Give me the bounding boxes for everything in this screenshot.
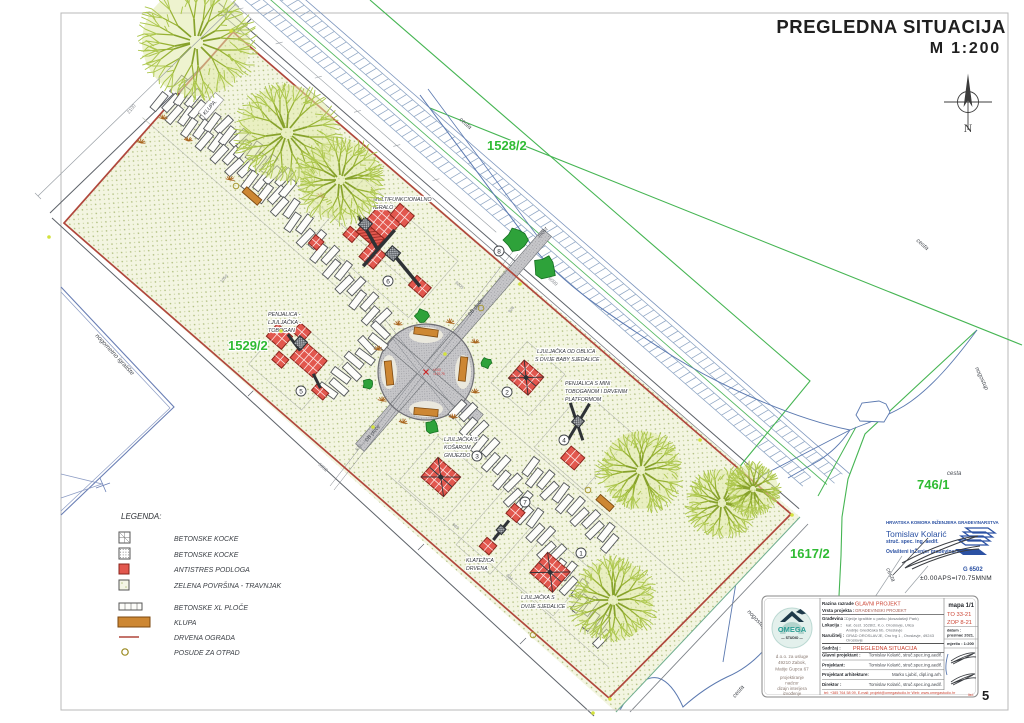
svg-text:DRVENA: DRVENA (466, 566, 488, 572)
svg-text:LEGENDA:: LEGENDA: (121, 512, 161, 521)
svg-text:Sadržaj :: Sadržaj : (822, 646, 841, 651)
svg-text:GRAĐEVINSKI PROJEKT: GRAĐEVINSKI PROJEKT (855, 608, 907, 613)
svg-text:LJULJAČKA S: LJULJAČKA S (444, 436, 478, 443)
svg-text:2: 2 (505, 389, 509, 396)
svg-text:GLAVNI PROJEKT: GLAVNI PROJEKT (855, 602, 901, 608)
svg-text:— STUDIO —: — STUDIO — (781, 636, 803, 640)
svg-text:KOŠAROM: KOŠAROM (444, 444, 471, 451)
svg-text:=170,75: =170,75 (433, 372, 445, 376)
svg-text:PLATFORMOM: PLATFORMOM (565, 397, 602, 403)
svg-text:Projektant:: Projektant: (822, 662, 845, 667)
svg-text:LJULJAČKA -: LJULJAČKA - (268, 319, 301, 326)
svg-text:tel: +385 764 58 09, E-mail: p: tel: +385 764 58 09, E-mail: projekt@ome… (824, 691, 956, 695)
svg-text:Matije Gupca 67: Matije Gupca 67 (775, 666, 809, 671)
svg-text:1529/2: 1529/2 (228, 338, 268, 353)
svg-text:3: 3 (475, 453, 479, 460)
svg-text:Tomislav Kolarić: Tomislav Kolarić (886, 529, 947, 539)
svg-text:POSUDE ZA OTPAD: POSUDE ZA OTPAD (174, 650, 240, 657)
svg-text:S DVIJE BABY SJEDALICE: S DVIJE BABY SJEDALICE (535, 357, 600, 363)
svg-text:N: N (964, 121, 973, 135)
svg-text:KLATEŽICA: KLATEŽICA (466, 556, 494, 564)
svg-text:nadzor: nadzor (785, 680, 799, 685)
svg-text:1: 1 (579, 550, 583, 557)
svg-text:LJULJAČKA OD OBLICA: LJULJAČKA OD OBLICA (537, 348, 596, 355)
svg-text:d.o.o. za usluge: d.o.o. za usluge (776, 654, 809, 659)
svg-text:G 6502: G 6502 (963, 567, 983, 573)
svg-text:±0.00APS=I70.75MNM: ±0.00APS=I70.75MNM (920, 575, 992, 582)
svg-text:1617/2: 1617/2 (790, 546, 830, 561)
svg-text:TOBOGANOM I DRVENIM: TOBOGANOM I DRVENIM (565, 389, 628, 395)
svg-text:prosinac 2021.: prosinac 2021. (947, 633, 974, 638)
svg-text:5: 5 (299, 388, 303, 395)
svg-text:TO 33-21: TO 33-21 (947, 612, 971, 618)
svg-text:struč. spec. ing. aedif.: struč. spec. ing. aedif. (886, 539, 939, 545)
svg-text:6: 6 (386, 278, 390, 285)
svg-text:7: 7 (523, 499, 527, 506)
svg-text:Andrije Gredičaka bb, Oroslavj: Andrije Gredičaka bb, Oroslavje (846, 628, 903, 633)
svg-text:PENJALICA -: PENJALICA - (268, 312, 301, 318)
svg-text:ZOP 8-21: ZOP 8-21 (947, 620, 972, 626)
svg-text:ANTISTRES PODLOGA: ANTISTRES PODLOGA (173, 567, 250, 574)
svg-text:Dječje igralište u parku (dosa: Dječje igralište u parku (dosadašnji Par… (846, 616, 919, 621)
svg-text:746/1: 746/1 (917, 477, 950, 492)
svg-text:M 1:200: M 1:200 (930, 40, 1001, 57)
svg-text:Direktor :: Direktor : (822, 682, 842, 687)
svg-text:1528/2: 1528/2 (487, 138, 527, 153)
svg-text:Marko Ljubić, dipl.ing.arh.: Marko Ljubić, dipl.ing.arh. (892, 672, 942, 677)
svg-text:mjerilo : 1:200: mjerilo : 1:200 (947, 641, 975, 646)
svg-text:dizajn interijera: dizajn interijera (777, 686, 807, 691)
svg-text:Glavni projektant :: Glavni projektant : (822, 653, 861, 658)
svg-text:PREGLEDNA SITUACIJA: PREGLEDNA SITUACIJA (776, 16, 1006, 37)
svg-text:OMEGA: OMEGA (778, 625, 807, 634)
svg-text:Vrsta projekta :: Vrsta projekta : (822, 608, 855, 613)
svg-text:Tomislav Kolarić, struč.spec.i: Tomislav Kolarić, struč.spec.ing.aedif. (869, 662, 942, 667)
svg-text:4: 4 (562, 437, 566, 444)
svg-text:Razina razrade :: Razina razrade : (822, 601, 857, 606)
svg-text:BETONSKE KOCKE: BETONSKE KOCKE (174, 552, 239, 559)
svg-text:HRVATSKA KOMORA INŽENJERA GRAĐ: HRVATSKA KOMORA INŽENJERA GRAĐEVINARSTVA (886, 520, 999, 525)
svg-text:PENJALICA S MINI: PENJALICA S MINI (565, 381, 611, 387)
svg-text:Projektant arhitekture:: Projektant arhitekture: (822, 672, 869, 677)
svg-text:izvođenje: izvođenje (783, 691, 802, 696)
svg-text:DRVENA OGRADA: DRVENA OGRADA (174, 635, 235, 642)
svg-text:Tomislav Kolarić, struč.spec.i: Tomislav Kolarić, struč.spec.ing.aedif. (869, 653, 942, 658)
svg-text:Lokacija :: Lokacija : (822, 623, 842, 628)
svg-text:ZELENA POVRŠINA - TRAVNJAK: ZELENA POVRŠINA - TRAVNJAK (173, 581, 282, 590)
svg-text:Naručitelj :: Naručitelj : (822, 633, 845, 638)
svg-text:mapa 1/1: mapa 1/1 (948, 603, 974, 609)
svg-text:GNIJEZDO: GNIJEZDO (444, 453, 470, 459)
svg-text:projektiranje: projektiranje (780, 675, 804, 680)
svg-text:Građevina :: Građevina : (822, 616, 846, 621)
svg-text:Oroslavje: Oroslavje (846, 638, 864, 643)
svg-text:PREGLEDNA SITUACIJA: PREGLEDNA SITUACIJA (853, 646, 918, 652)
svg-text:Tomislav Kolarić, struč.spec.i: Tomislav Kolarić, struč.spec.ing.aedif. (869, 682, 942, 687)
svg-text:49210 Zabok,: 49210 Zabok, (778, 660, 806, 665)
svg-text:KLUPA: KLUPA (174, 620, 197, 627)
svg-text:list:: list: (968, 693, 974, 697)
svg-text:BETONSKE XL PLOČE: BETONSKE XL PLOČE (174, 603, 248, 612)
svg-text:cesta: cesta (947, 471, 962, 477)
svg-text:LJULJAČKA S: LJULJAČKA S (521, 594, 555, 601)
svg-text:5: 5 (982, 688, 989, 703)
svg-text:8: 8 (497, 248, 501, 255)
svg-text:DVIJE SJEDALICE: DVIJE SJEDALICE (521, 604, 566, 610)
svg-text:BETONSKE KOCKE: BETONSKE KOCKE (174, 536, 239, 543)
